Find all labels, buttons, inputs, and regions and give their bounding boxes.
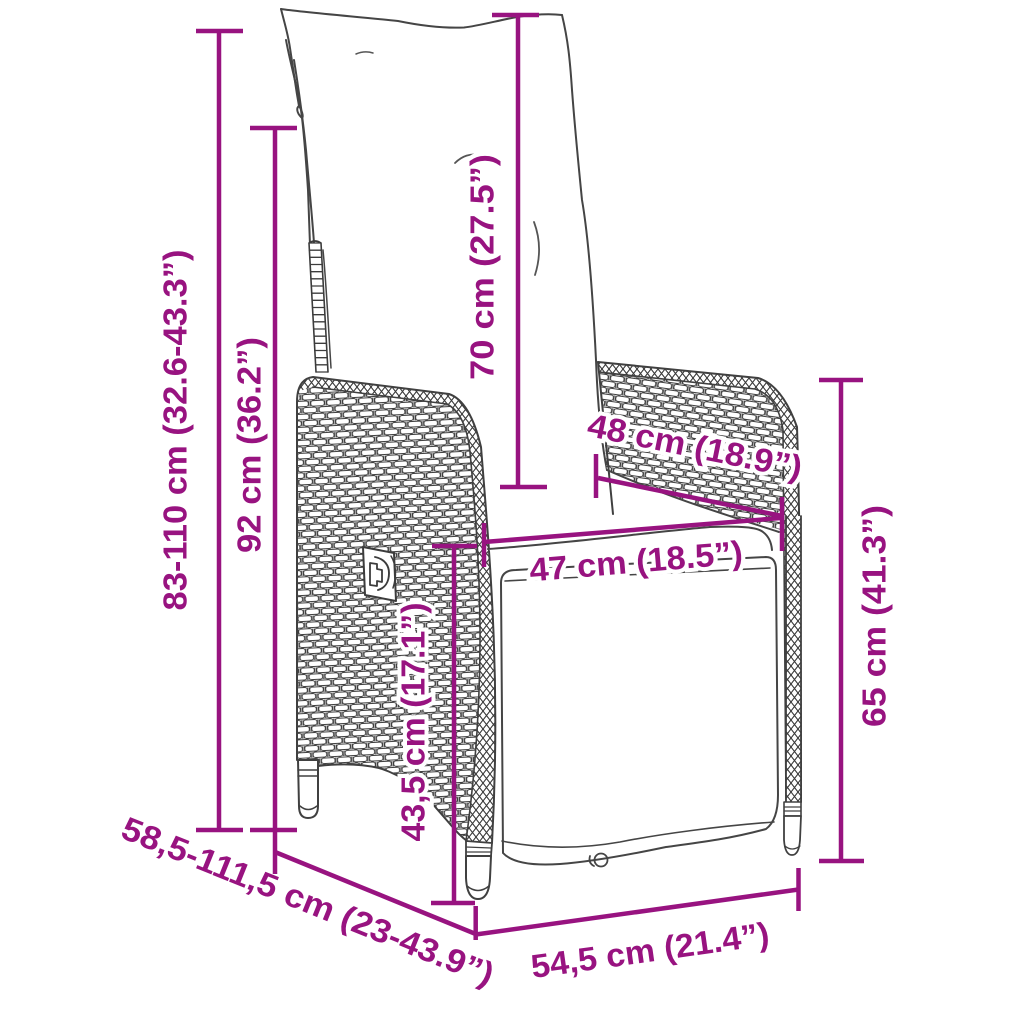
svg-text:65 cm (41.3”): 65 cm (41.3”) — [856, 505, 893, 727]
svg-text:92 cm (36.2”): 92 cm (36.2”) — [231, 337, 268, 553]
svg-text:43,5 cm (17.1”): 43,5 cm (17.1”) — [395, 603, 432, 842]
svg-text:70 cm (27.5”): 70 cm (27.5”) — [464, 154, 501, 380]
svg-text:83-110 cm (32.6-43.3”): 83-110 cm (32.6-43.3”) — [157, 249, 194, 610]
